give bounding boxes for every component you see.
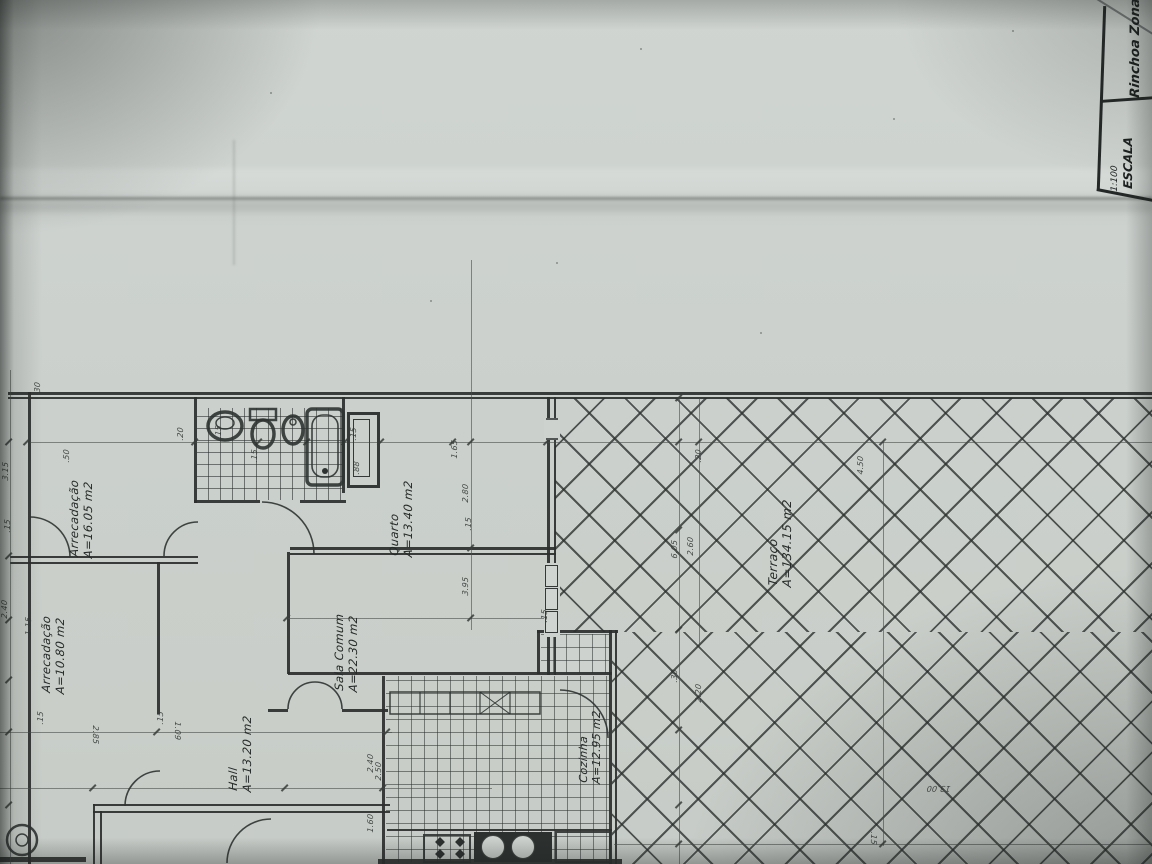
dimension-label: .20 — [694, 449, 703, 463]
dimension-label: 1.15 — [24, 616, 33, 636]
dimension-label: .88 — [352, 461, 361, 475]
dimension-label: 2.60 — [686, 536, 695, 556]
door-arc — [125, 771, 160, 806]
stove-icon — [424, 835, 470, 862]
sink-bowl-icon — [481, 835, 505, 859]
dimension-label: 1.09 — [173, 721, 182, 741]
room-name: Arrecadação — [40, 615, 54, 693]
room-area: A=12.95 m2 — [591, 710, 604, 785]
title-block-scale-value: 1:100 — [1110, 165, 1121, 192]
plan-graphic — [7, 409, 610, 863]
cabinet-run — [390, 692, 540, 714]
dimension-label: .50 — [62, 449, 71, 463]
paper-fold-highlight — [0, 168, 1152, 194]
room-area: A=134.15 m2 — [780, 499, 794, 588]
paper-speck — [1012, 30, 1014, 32]
dimension-label: .20 — [176, 427, 185, 441]
bathtub-drain-icon — [322, 468, 328, 474]
title-block-zone-label: Rinchoa Zona — [1128, 0, 1143, 99]
room-area: A=16.05 m2 — [82, 481, 96, 559]
laundry-tank-icon — [7, 825, 37, 855]
paper-speck — [430, 300, 432, 302]
stove-burners-icon — [435, 837, 465, 859]
door-arc — [227, 819, 271, 863]
fixtures-and-doors-layer — [0, 380, 1152, 864]
room-label-arrecadacao-1: ArrecadaçãoA=16.05 m2 — [68, 479, 95, 559]
dimension-label: 6.05 — [670, 539, 679, 559]
cabinet-dividers — [420, 692, 510, 714]
room-area: A=22.30 m2 — [347, 614, 361, 692]
dimension-label: .15 — [214, 425, 223, 439]
paper-speck — [556, 262, 558, 264]
dimension-label: 13.00 — [926, 784, 951, 793]
dimension-label: 4.50 — [856, 455, 865, 475]
scanned-floor-plan-photo: Rinchoa Zona ESCALA 1:100 — [0, 0, 1152, 864]
bidet-tap-icon — [290, 419, 296, 425]
door-arc — [164, 522, 198, 556]
door-arc — [30, 517, 70, 557]
dimension-label: .15 — [250, 449, 259, 463]
paper-speck — [760, 332, 762, 334]
title-block-border-left — [1097, 6, 1106, 190]
floor-plan: ArrecadaçãoA=16.05 m2ArrecadaçãoA=10.80 … — [0, 380, 1152, 864]
sink-bowl-icon — [511, 835, 535, 859]
plan-graphic — [435, 849, 445, 859]
paper-speck — [893, 118, 895, 120]
title-block-scale-label: ESCALA — [1121, 136, 1135, 189]
paper-fold-line — [0, 197, 1152, 200]
dimension-label: 1.60 — [366, 813, 375, 833]
dimension-label: .15 — [540, 609, 549, 623]
room-area: A=13.20 m2 — [241, 715, 255, 793]
plan-graphic — [455, 837, 465, 847]
plan-graphic — [455, 849, 465, 859]
dimension-label: 2.85 — [91, 725, 100, 745]
bidet-icon — [283, 416, 303, 444]
appliance-cross — [480, 692, 510, 714]
dimension-label: 2.20 — [694, 683, 703, 703]
room-label-sala-comum: Sala ComumA=22.30 m2 — [333, 613, 360, 693]
room-name: Arrecadação — [68, 479, 82, 557]
dimension-label: 3.15 — [1, 461, 10, 481]
paper-speck — [640, 48, 642, 50]
room-name: Quarto — [388, 478, 402, 556]
dimension-label: .15 — [36, 711, 45, 725]
room-name: Terraço — [766, 497, 780, 586]
room-label-arrecadacao-2: ArrecadaçãoA=10.80 m2 — [40, 615, 67, 695]
dimension-label: 1.65 — [450, 439, 459, 459]
room-area: A=10.80 m2 — [54, 617, 68, 695]
room-label-quarto: QuartoA=13.40 m2 — [388, 478, 415, 557]
room-name: Hall — [227, 713, 241, 791]
title-block-divider — [1102, 96, 1152, 102]
dimension-label: 2.40 — [366, 753, 375, 773]
bathtub-inner-icon — [312, 415, 338, 477]
counter-right — [556, 832, 610, 862]
double-door-arc-left — [288, 682, 315, 709]
dimension-label: .15 — [156, 711, 165, 725]
room-label-cozinha: CozinhaA=12.95 m2 — [578, 709, 604, 785]
paper-crease — [233, 140, 235, 265]
dimension-label: 30 — [33, 381, 42, 393]
dimension-label: 2.80 — [461, 483, 470, 503]
room-area: A=13.40 m2 — [402, 480, 416, 558]
room-label-hall: HallA=13.20 m2 — [227, 713, 254, 792]
paper-speck — [270, 92, 272, 94]
dimension-label: .15 — [464, 517, 473, 531]
plan-graphic — [435, 837, 445, 847]
dimension-label: .30 — [670, 669, 679, 683]
laundry-tank-inner-icon — [16, 834, 28, 846]
dimension-label: 3.95 — [461, 576, 470, 596]
paper-fold-shadow — [0, 201, 1152, 212]
toilet-icon — [252, 420, 274, 448]
dimension-label: .15 — [349, 427, 358, 441]
door-arc — [262, 502, 314, 554]
room-label-terraco: TerraçoA=134.15 m2 — [766, 497, 794, 588]
dimension-label: 2.40 — [0, 599, 9, 619]
dimension-label: .15 — [869, 831, 878, 845]
dimension-label: .15 — [3, 519, 12, 533]
room-name: Sala Comum — [333, 613, 347, 691]
